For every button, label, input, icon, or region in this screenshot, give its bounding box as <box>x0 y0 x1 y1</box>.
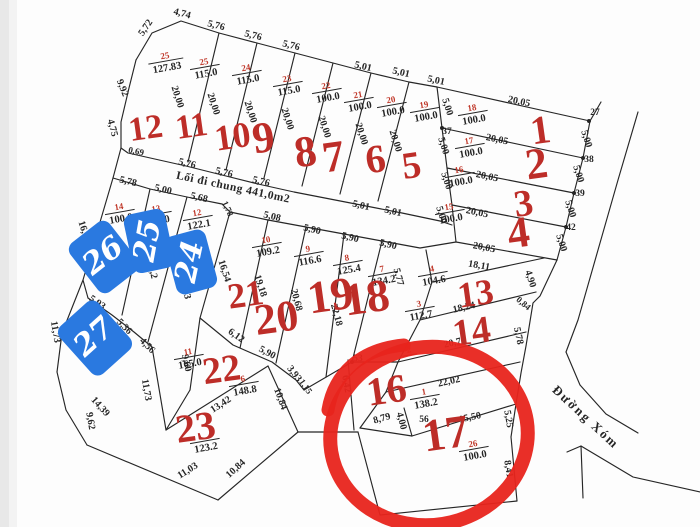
cadastral-map-page: 5,724,745,765,765,765,015,015,0120,059,9… <box>0 0 700 527</box>
plot-number-10: 10 <box>212 114 253 159</box>
survey-point-dot <box>587 119 591 123</box>
plot-number-13: 13 <box>455 271 496 316</box>
plot-number-23: 23 <box>172 402 218 452</box>
plot-number-18: 18 <box>340 269 393 326</box>
survey-point-label: 27 <box>590 108 600 118</box>
plot-number-11: 11 <box>173 106 210 147</box>
survey-point-label: 42 <box>566 223 576 233</box>
cadastral-map-svg: 5,724,745,765,765,765,015,015,0120,059,9… <box>0 0 700 527</box>
survey-point-label: 39 <box>575 189 585 199</box>
badge-number: 25 <box>126 217 168 265</box>
plot-number-17: 17 <box>419 405 472 462</box>
survey-point-label: 38 <box>584 155 594 165</box>
scan-shadow <box>9 0 17 527</box>
survey-point-label: 37 <box>442 127 452 137</box>
scan-shadow <box>0 0 9 527</box>
plot-number-22: 22 <box>200 346 243 393</box>
plot-number-20: 20 <box>251 290 301 345</box>
plot-number-12: 12 <box>126 108 165 149</box>
